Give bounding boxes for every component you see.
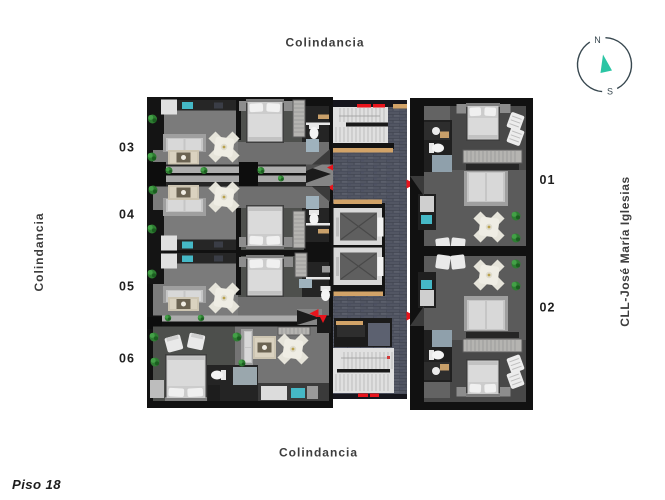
svg-text:02: 02	[540, 301, 556, 315]
svg-text:06: 06	[119, 352, 135, 366]
svg-text:Piso 18: Piso 18	[12, 477, 61, 492]
svg-text:Colindancia: Colindancia	[32, 212, 46, 291]
svg-text:03: 03	[119, 141, 135, 155]
svg-text:01: 01	[540, 173, 556, 187]
svg-text:04: 04	[119, 208, 135, 222]
svg-text:05: 05	[119, 280, 135, 294]
svg-text:N: N	[594, 35, 601, 45]
svg-text:S: S	[607, 87, 613, 97]
svg-text:Colindancia: Colindancia	[285, 36, 364, 50]
svg-text:CLL-José María Iglesias: CLL-José María Iglesias	[618, 176, 632, 327]
svg-text:Colindancia: Colindancia	[279, 446, 358, 460]
